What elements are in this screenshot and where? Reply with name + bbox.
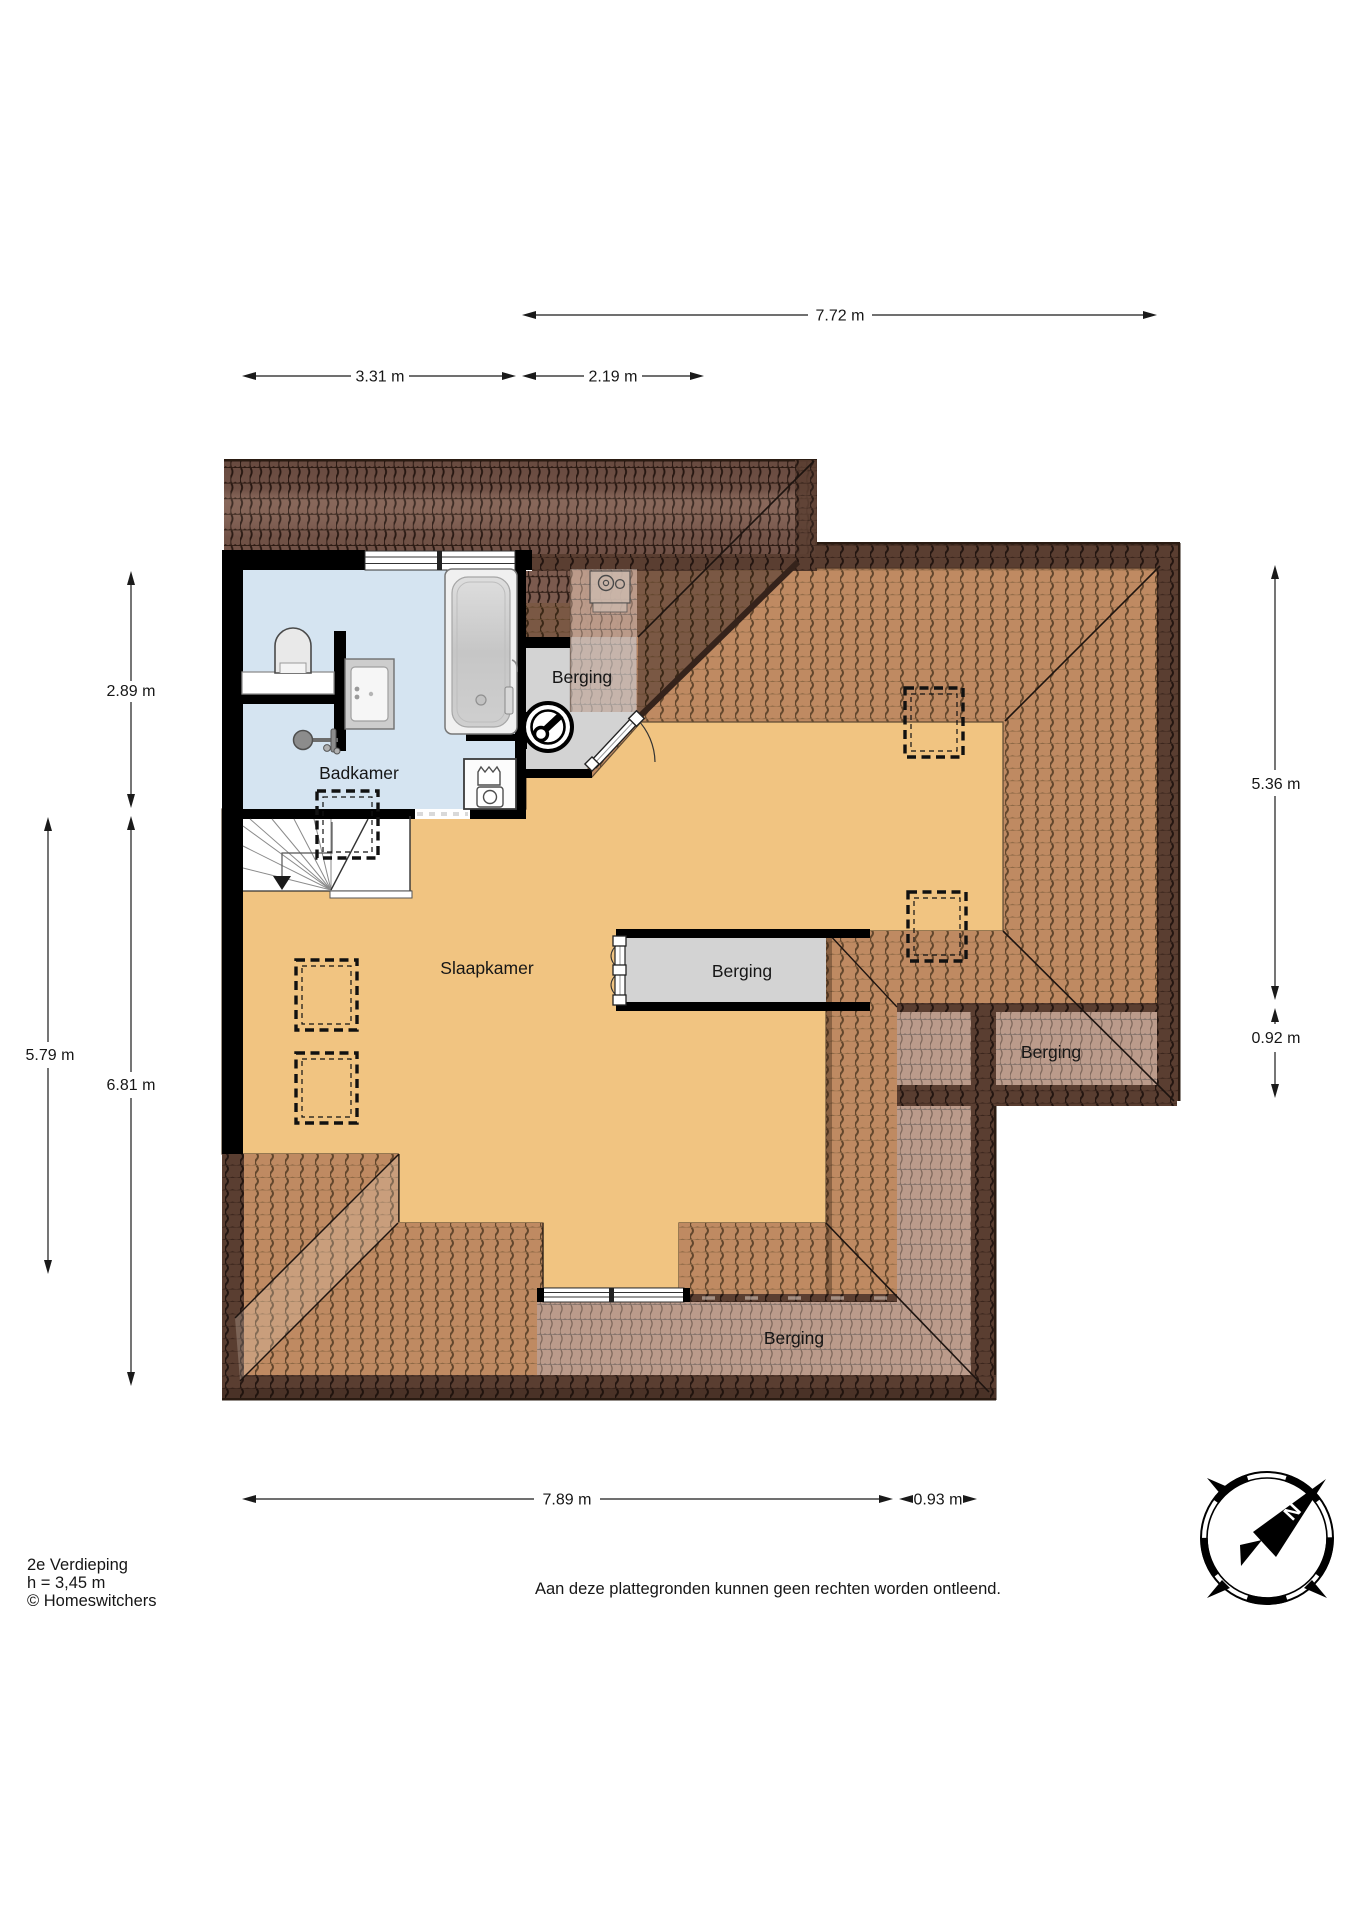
svg-text:Slaapkamer: Slaapkamer: [440, 958, 534, 978]
svg-text:0.93 m: 0.93 m: [914, 1492, 963, 1509]
svg-text:7.72 m: 7.72 m: [816, 308, 865, 325]
svg-text:Berging: Berging: [712, 961, 772, 981]
svg-text:2.89 m: 2.89 m: [107, 683, 156, 700]
svg-text:3.31 m: 3.31 m: [356, 369, 405, 386]
svg-text:5.79 m: 5.79 m: [26, 1047, 75, 1064]
svg-text:Berging: Berging: [1021, 1042, 1081, 1062]
svg-text:5.36 m: 5.36 m: [1252, 776, 1301, 793]
svg-text:© Homeswitchers: © Homeswitchers: [27, 1592, 157, 1610]
svg-text:6.81 m: 6.81 m: [107, 1077, 156, 1094]
svg-text:Badkamer: Badkamer: [319, 763, 399, 783]
svg-text:2e Verdieping: 2e Verdieping: [27, 1556, 128, 1574]
svg-text:2.19 m: 2.19 m: [589, 369, 638, 386]
svg-text:Berging: Berging: [764, 1328, 824, 1348]
svg-text:h = 3,45 m: h = 3,45 m: [27, 1574, 105, 1592]
svg-text:0.92 m: 0.92 m: [1252, 1030, 1301, 1047]
svg-text:7.89 m: 7.89 m: [543, 1492, 592, 1509]
svg-text:Berging: Berging: [552, 667, 612, 687]
svg-text:Aan deze plattegronden kunnen: Aan deze plattegronden kunnen geen recht…: [535, 1580, 1001, 1598]
